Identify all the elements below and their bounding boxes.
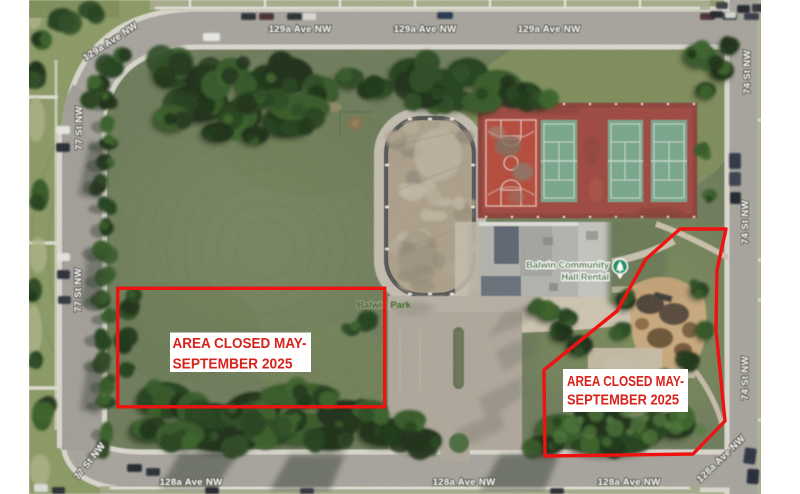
- svg-text:SEPTEMBER 2025: SEPTEMBER 2025: [567, 392, 679, 409]
- svg-text:AREA CLOSED MAY-: AREA CLOSED MAY-: [173, 335, 307, 352]
- svg-text:SEPTEMBER 2025: SEPTEMBER 2025: [173, 356, 293, 373]
- svg-text:AREA CLOSED MAY-: AREA CLOSED MAY-: [567, 373, 684, 390]
